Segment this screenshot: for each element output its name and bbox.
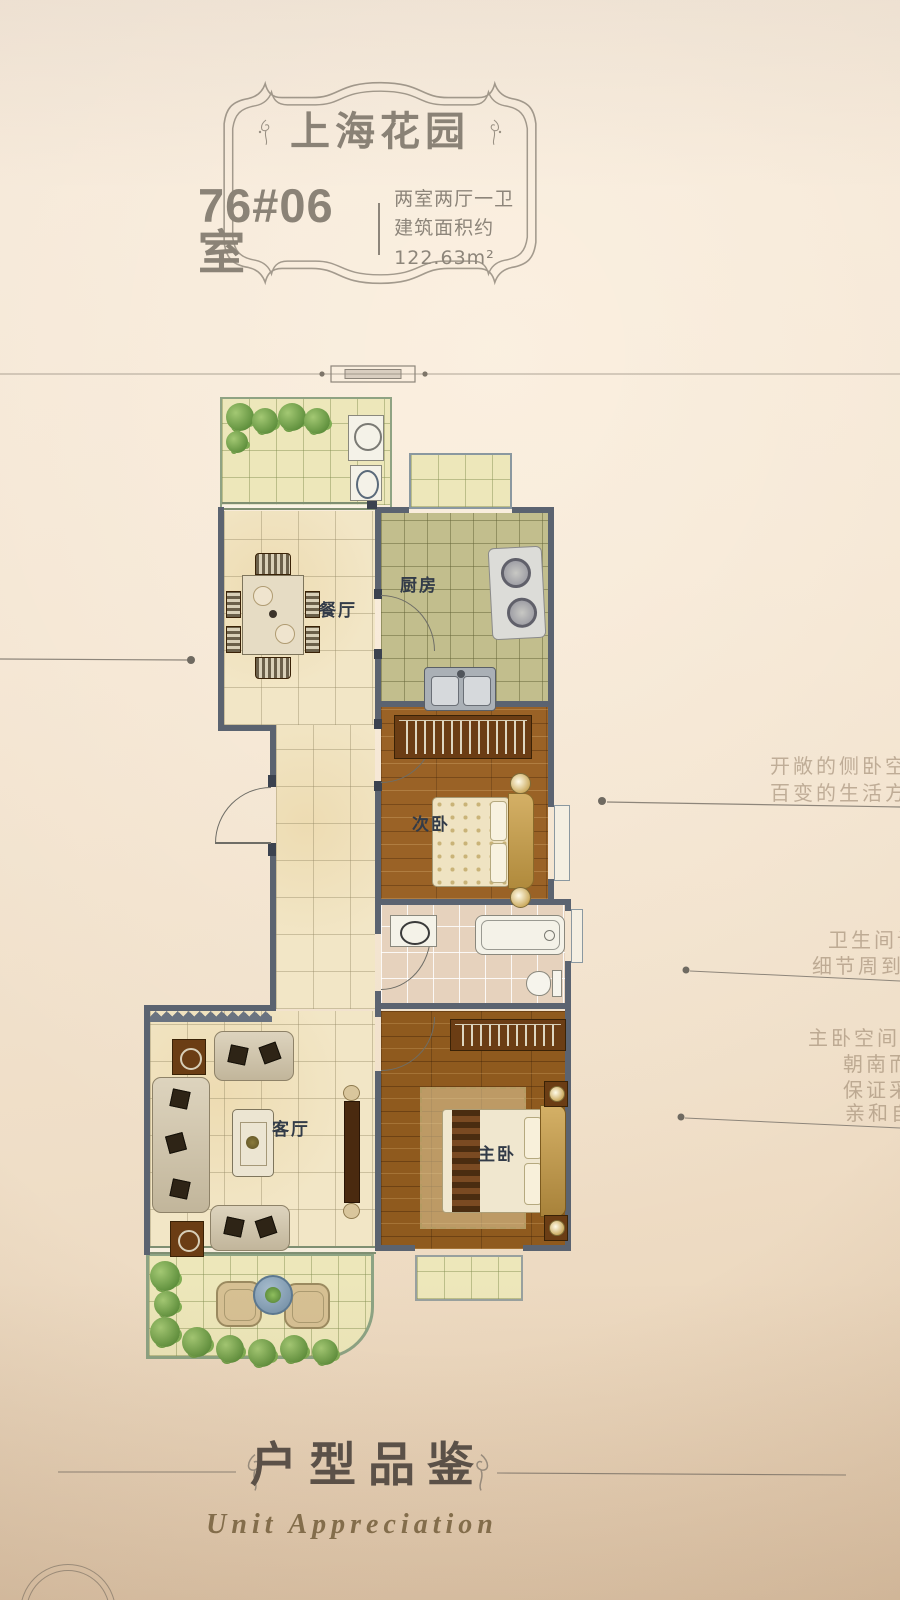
top-divider-ornament-inner — [345, 370, 401, 379]
callout-line-left — [0, 659, 188, 660]
ornament-dot-right — [422, 371, 427, 376]
callout-dot-r3 — [678, 1114, 685, 1121]
room-label-bedroom2: 次卧 — [412, 817, 450, 834]
annotation-lines — [0, 0, 900, 1600]
poster-page: 上海花园 76#06室 两室两厅一卫 建筑面积约122.63m² — [0, 0, 900, 1600]
room-label-kitchen: 厨房 — [400, 578, 438, 595]
footer-line-right — [497, 1473, 846, 1475]
room-label-dining: 餐厅 — [319, 603, 357, 620]
callout-dot-left — [187, 656, 195, 664]
callout-dot-r1 — [598, 797, 606, 805]
room-label-living: 客厅 — [272, 1122, 310, 1139]
room-label-master: 主卧 — [478, 1147, 516, 1164]
callout-dot-r2 — [683, 967, 690, 974]
ornament-dot-left — [319, 371, 324, 376]
